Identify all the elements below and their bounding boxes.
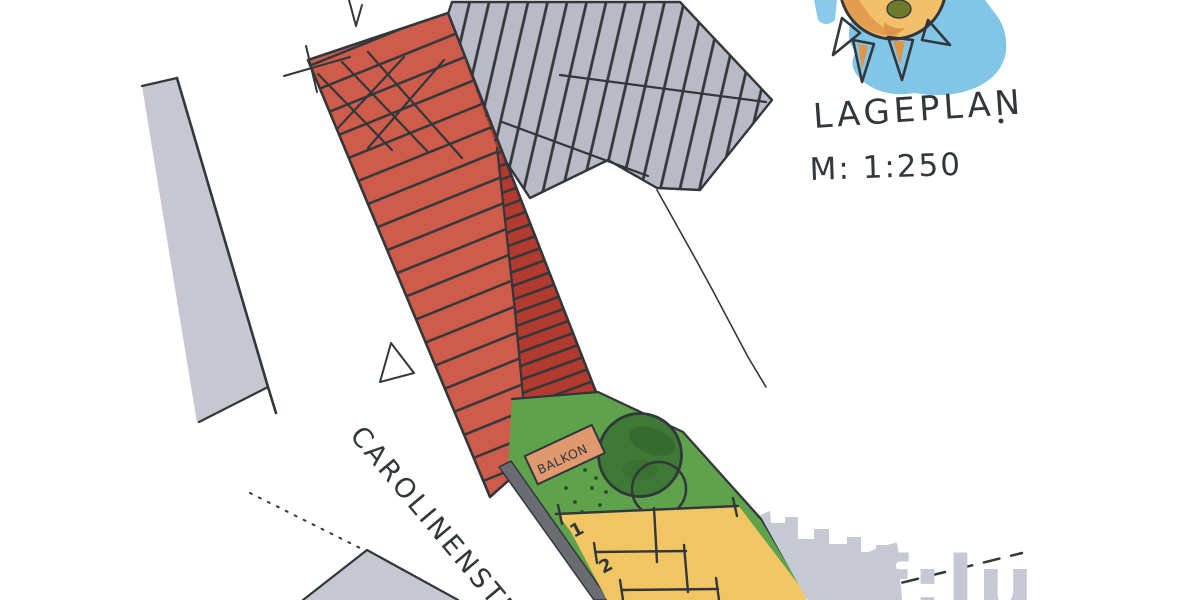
parcel-boundary-line bbox=[657, 190, 766, 387]
entrance-arrow-marker bbox=[380, 343, 414, 382]
title-end-dot bbox=[999, 119, 1003, 123]
site-plan-canvas: LAGEPLAN M: 1:250 bbox=[0, 0, 1200, 600]
watermark-text: f:lu bbox=[874, 541, 1037, 600]
plan-scale: M: 1:250 bbox=[809, 147, 963, 188]
plan-title: LAGEPLAN bbox=[812, 82, 1025, 137]
watermark: f:lu bbox=[760, 511, 1037, 600]
corner-building-block bbox=[303, 550, 458, 600]
dotted-boundary-line bbox=[250, 493, 360, 548]
site-plan-sketch: LAGEPLAN M: 1:250 bbox=[0, 0, 1200, 600]
left-building-block bbox=[142, 78, 276, 423]
